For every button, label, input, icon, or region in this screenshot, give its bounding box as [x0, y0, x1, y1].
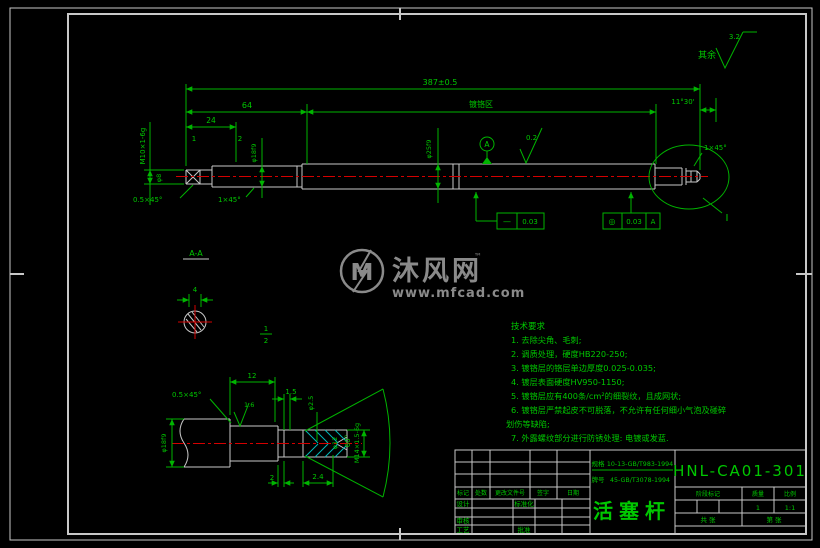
grade-value: 45-GB/T3078-1994: [610, 477, 670, 484]
section-label: A-A: [189, 249, 203, 258]
drawing-canvas: 其余 3.2: [0, 0, 820, 548]
dim-tick-2: 2: [238, 135, 242, 143]
role-standard: 标准化: [514, 499, 534, 508]
scale-label: 比例: [784, 490, 796, 498]
tech-line: 6. 镀铬层严禁起皮不可脱落，不允许有任何细小气泡及碰碎: [511, 405, 726, 415]
main-view-outline: [176, 164, 708, 189]
tol2-datum: A: [651, 218, 656, 226]
watermark: M 沐风网 ™ www.mfcad.com: [341, 250, 525, 301]
mass-label: 质量: [752, 490, 764, 498]
dia-18-label: φ18f9: [250, 144, 258, 163]
rev-header-docno: 更改文件号: [495, 489, 525, 497]
detail-dim-24: 2.4: [312, 473, 324, 481]
sheet-number: 第 张: [766, 515, 782, 524]
rev-header-mark: 标记: [457, 489, 469, 497]
tech-line: 7. 外露螺纹部分进行防锈处理: 电镀或发蓝.: [511, 433, 669, 443]
role-check: 审核: [457, 516, 471, 525]
tech-title: 技术要求: [511, 321, 546, 332]
detail-dim-15: 1.5: [285, 388, 296, 396]
grade-label: 牌号: [592, 475, 606, 484]
tol2-value: 0.03: [626, 218, 642, 226]
tech-line: 3. 镀铬层的铬层单边厚度0.025-0.035;: [511, 363, 656, 373]
datum-triangle: [482, 157, 492, 164]
detail-dia-18: φ18f9: [160, 434, 168, 453]
fraction-bottom: 2: [264, 337, 268, 345]
role-process: 工艺: [457, 526, 471, 534]
section-dim-4: 4: [193, 286, 198, 294]
part-name: 活塞杆: [593, 499, 671, 523]
surface-note-value: 3.2: [729, 33, 740, 41]
section-view: A-A 4 1 2: [177, 249, 272, 345]
detail-dia-12: φ12: [331, 437, 339, 450]
role-approve: 批准: [518, 525, 532, 534]
chamfer-1-label: 1×45°: [218, 196, 241, 204]
drawing-number: HNL-CA01-301: [673, 462, 807, 480]
dim-64: 64: [242, 101, 252, 110]
tech-line: 1. 去除尖角、毛刺;: [511, 335, 582, 345]
tech-line: 划伤等缺陷;: [506, 419, 550, 429]
cone-angle-label: 60°: [344, 435, 352, 447]
tol1-value: 0.03: [522, 218, 538, 226]
chamfer-right-label: 1×45°: [704, 144, 727, 152]
dim-angle: 11°30': [671, 98, 694, 106]
main-view-dimensions: 387±0.5 64 镀铬区 11°30' 24 1 2 M10×1-6g φ8…: [133, 78, 729, 229]
scale-value: 1:1: [785, 504, 795, 512]
watermark-brand: 沐风网: [392, 256, 482, 287]
detail-dim-12: 12: [248, 372, 257, 380]
dim-overall-length: 387±0.5: [423, 78, 458, 87]
detail-chamfer-label: 0.5×45°: [172, 391, 201, 399]
surface-note-label: 其余: [698, 49, 716, 61]
datum-letter: A: [484, 140, 490, 149]
spec-value: 10-13-GB/T983-1994: [607, 461, 673, 468]
detail-thread-label: M14×1.5-6g: [353, 423, 361, 463]
thread-callout-left: M10×1-6g: [139, 128, 147, 165]
rev-header-sign: 签字: [537, 489, 549, 497]
tol2-symbol: ◎: [609, 217, 616, 226]
detail-roughness-value: 1.6: [244, 401, 254, 409]
tech-line: 2. 调质处理，硬度HB220-250;: [511, 349, 627, 359]
role-design: 设计: [457, 499, 471, 508]
watermark-tm: ™: [474, 252, 482, 261]
spec-label: 规格: [592, 459, 606, 468]
detail-ref-label: I: [726, 213, 729, 224]
title-block: 标记 处数 更改文件号 签字 日期 设计 标准化 审核 工艺 批准 规格 10-…: [455, 450, 807, 534]
technical-requirements: 技术要求 1. 去除尖角、毛刺; 2. 调质处理，硬度HB220-250; 3.…: [506, 321, 726, 443]
rev-header-date: 日期: [567, 489, 579, 497]
dia-25-label: φ25f9: [425, 140, 433, 159]
dia-relief-label: φ8: [155, 174, 163, 182]
dim-tick-1: 1: [192, 135, 196, 143]
cad-drawing-sheet: 其余 3.2: [0, 0, 820, 548]
roughness-mid-value: 0.2: [526, 134, 537, 142]
stage-label: 阶段标记: [696, 490, 720, 498]
tech-line: 5. 镀铬层应有400条/cm²的细裂纹，且成网状;: [511, 391, 681, 401]
detail-view: 60° φ18f9 0.5×45° 12 1.6 1.5 φ2.5 φ12 M1…: [160, 372, 390, 497]
dim-24: 24: [206, 116, 216, 125]
fraction-top: 1: [264, 325, 268, 333]
detail-dia-25: φ2.5: [307, 396, 315, 411]
chamfer-05-label: 0.5×45°: [133, 196, 162, 204]
tol1-symbol: —: [503, 217, 511, 226]
chrome-zone-label: 镀铬区: [469, 99, 493, 109]
mass-value: 1: [756, 504, 760, 512]
rev-header-count: 处数: [475, 489, 487, 497]
sheets-total: 共 张: [700, 515, 716, 524]
surface-finish-note: 其余 3.2: [698, 32, 757, 68]
detail-dim-2: 2: [270, 474, 274, 482]
watermark-url: www.mfcad.com: [392, 286, 525, 301]
tech-line: 4. 镀层表面硬度HV950-1150;: [511, 377, 624, 387]
